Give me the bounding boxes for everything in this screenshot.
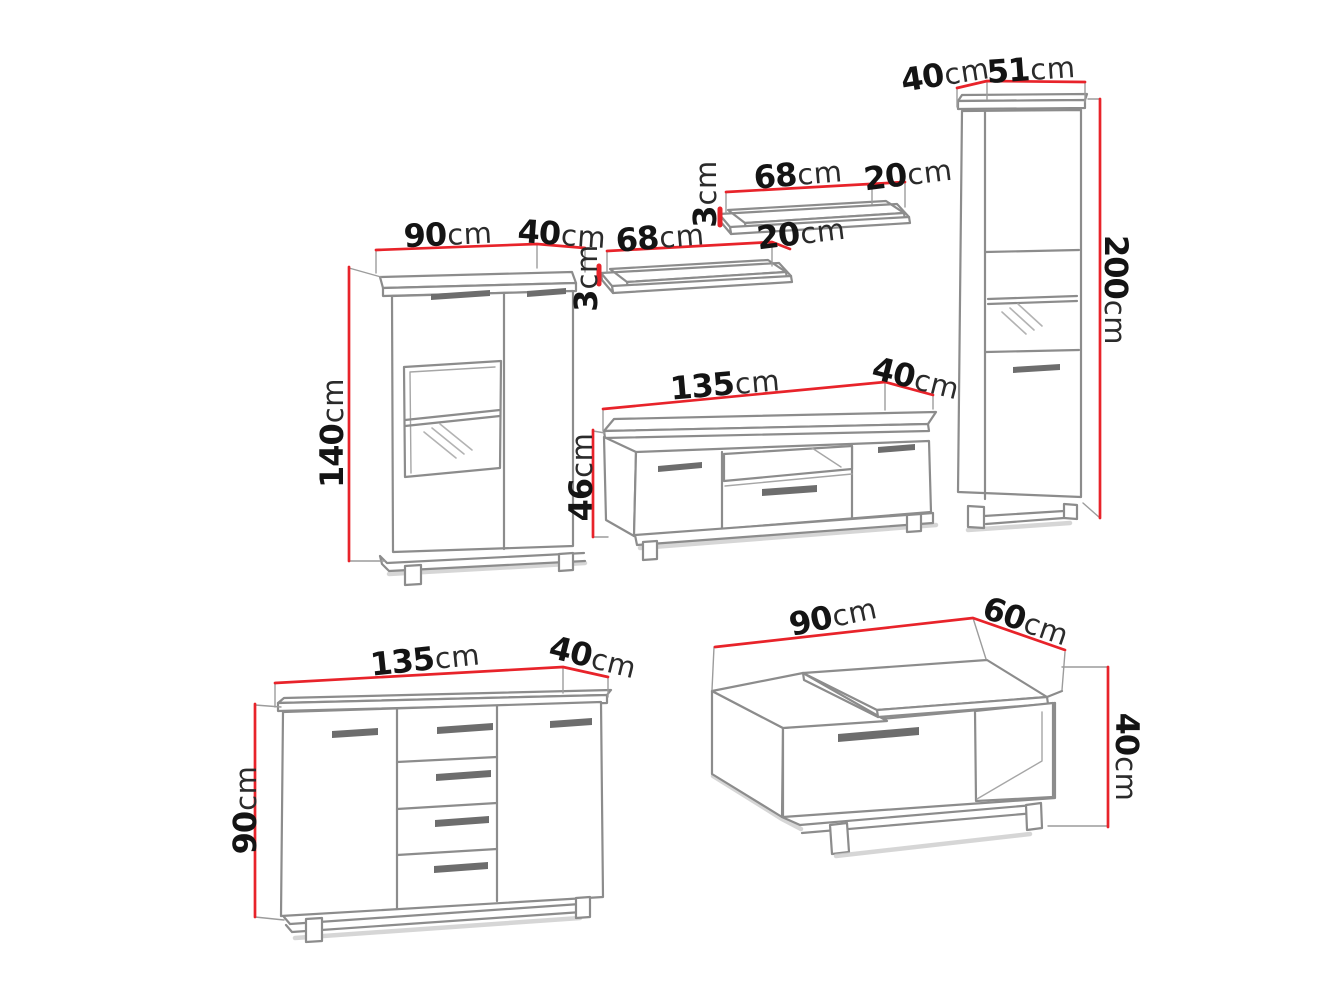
dimension-unit: cm xyxy=(1029,50,1076,87)
line-art xyxy=(0,0,1329,997)
display-cabinet-drawing xyxy=(349,244,585,585)
dimension-value: 20 xyxy=(862,155,909,198)
dimension-value: 3 xyxy=(567,290,605,311)
sideboard-height-label: 90cm xyxy=(229,766,261,855)
tv-stand-height-label: 46cm xyxy=(565,433,597,522)
tv-stand-left-side xyxy=(604,437,636,536)
dimension-unit: cm xyxy=(316,378,350,423)
coffee-table-height-label: 40cm xyxy=(1111,713,1143,802)
sideboard-drawing xyxy=(255,667,611,942)
dimension-unit: cm xyxy=(565,433,599,478)
sideboard-body xyxy=(281,702,603,916)
dimension-unit: cm xyxy=(1109,756,1143,801)
dimension-value: 135 xyxy=(669,364,736,407)
shelf-upper-width-label: 68cm xyxy=(752,154,843,194)
dimension-value: 40 xyxy=(1108,713,1146,756)
dimension-value: 90 xyxy=(226,812,264,855)
furniture-dimension-diagram: 90cm 40cm 140cm 68cm 20cm 3cm 68cm 20cm … xyxy=(0,0,1329,997)
dimension-value: 68 xyxy=(614,218,660,260)
tv-stand-leg-left xyxy=(643,541,657,560)
dimension-unit: cm xyxy=(733,363,781,401)
dimension-value: 20 xyxy=(755,214,802,257)
dimension-value: 200 xyxy=(1097,235,1135,299)
tv-stand-width-label: 135cm xyxy=(669,363,781,404)
coffee-table-leg-left xyxy=(830,823,849,854)
tall-cabinet-leg-right xyxy=(1064,504,1077,519)
dimension-value: 51 xyxy=(985,50,1030,91)
dimension-unit: cm xyxy=(798,212,847,251)
dimension-value: 3 xyxy=(686,206,724,227)
dimension-value: 40 xyxy=(898,56,946,100)
dimension-unit: cm xyxy=(689,160,723,205)
dimension-value: 46 xyxy=(562,479,600,522)
display-cabinet-height-label: 140cm xyxy=(316,378,348,488)
dimension-value: 90 xyxy=(403,215,447,255)
dimension-unit: cm xyxy=(942,51,992,92)
sideboard-leg-right xyxy=(576,897,590,918)
tall-cabinet-drawing xyxy=(957,81,1100,530)
tall-cabinet-width-label: 51cm xyxy=(986,50,1077,88)
dimension-unit: cm xyxy=(229,766,263,811)
shelf-upper-thickness-label: 3cm xyxy=(689,160,721,227)
display-cabinet-width-label: 90cm xyxy=(403,216,493,253)
coffee-table-drawing xyxy=(712,618,1108,856)
tall-cabinet-leg-left xyxy=(968,506,984,528)
shelf-lower-thickness-label: 3cm xyxy=(570,244,602,311)
dimension-value: 68 xyxy=(752,155,798,197)
display-cabinet-leg-right xyxy=(559,553,573,571)
tv-stand-drawing xyxy=(593,382,936,560)
dimension-unit: cm xyxy=(433,637,482,676)
display-cabinet-leg-left xyxy=(405,565,421,585)
dimension-unit: cm xyxy=(796,154,844,192)
tall-cabinet-height-label: 200cm xyxy=(1100,235,1132,345)
sideboard-leg-left xyxy=(306,918,322,942)
dimension-unit: cm xyxy=(905,153,954,192)
dimension-value: 140 xyxy=(313,424,351,488)
dimension-unit: cm xyxy=(1098,300,1132,345)
dimension-value: 40 xyxy=(516,212,561,253)
coffee-table-leg-right xyxy=(1026,803,1042,830)
tv-stand-leg-right xyxy=(907,514,921,532)
dimension-unit: cm xyxy=(570,244,604,289)
dimension-value: 135 xyxy=(368,639,435,683)
dimension-unit: cm xyxy=(446,216,493,252)
